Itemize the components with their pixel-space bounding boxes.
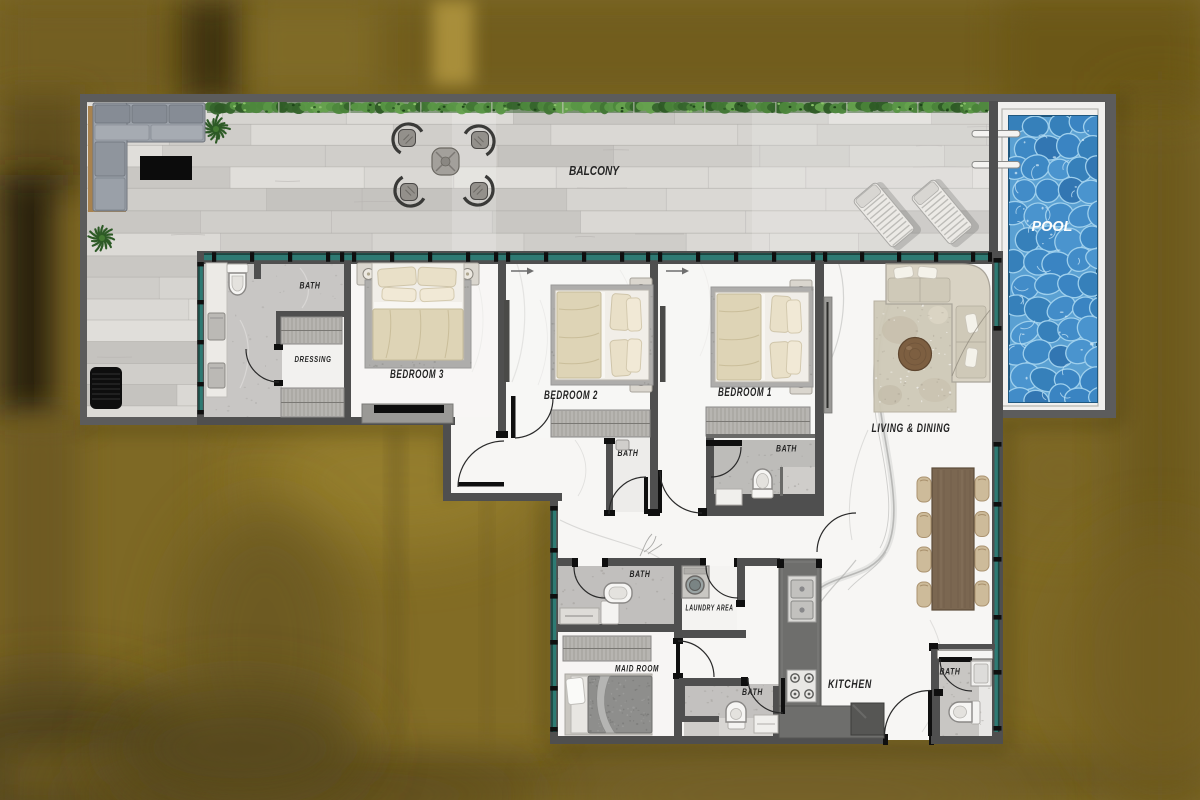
svg-text:LIVING & DINING: LIVING & DINING <box>872 423 951 435</box>
svg-text:BEDROOM 1: BEDROOM 1 <box>718 387 772 399</box>
svg-text:BATH: BATH <box>776 444 797 454</box>
svg-text:LAUNDRY AREA: LAUNDRY AREA <box>686 604 734 613</box>
svg-text:BALCONY: BALCONY <box>569 163 620 178</box>
svg-text:DRESSING: DRESSING <box>295 354 332 364</box>
svg-text:BATH: BATH <box>300 281 321 291</box>
svg-text:BEDROOM 3: BEDROOM 3 <box>390 369 444 381</box>
svg-text:KITCHEN: KITCHEN <box>828 679 872 691</box>
svg-text:POOL: POOL <box>1032 218 1073 235</box>
svg-text:BEDROOM 2: BEDROOM 2 <box>544 390 598 402</box>
svg-text:MAID ROOM: MAID ROOM <box>615 664 659 674</box>
svg-text:BATH: BATH <box>630 569 651 579</box>
